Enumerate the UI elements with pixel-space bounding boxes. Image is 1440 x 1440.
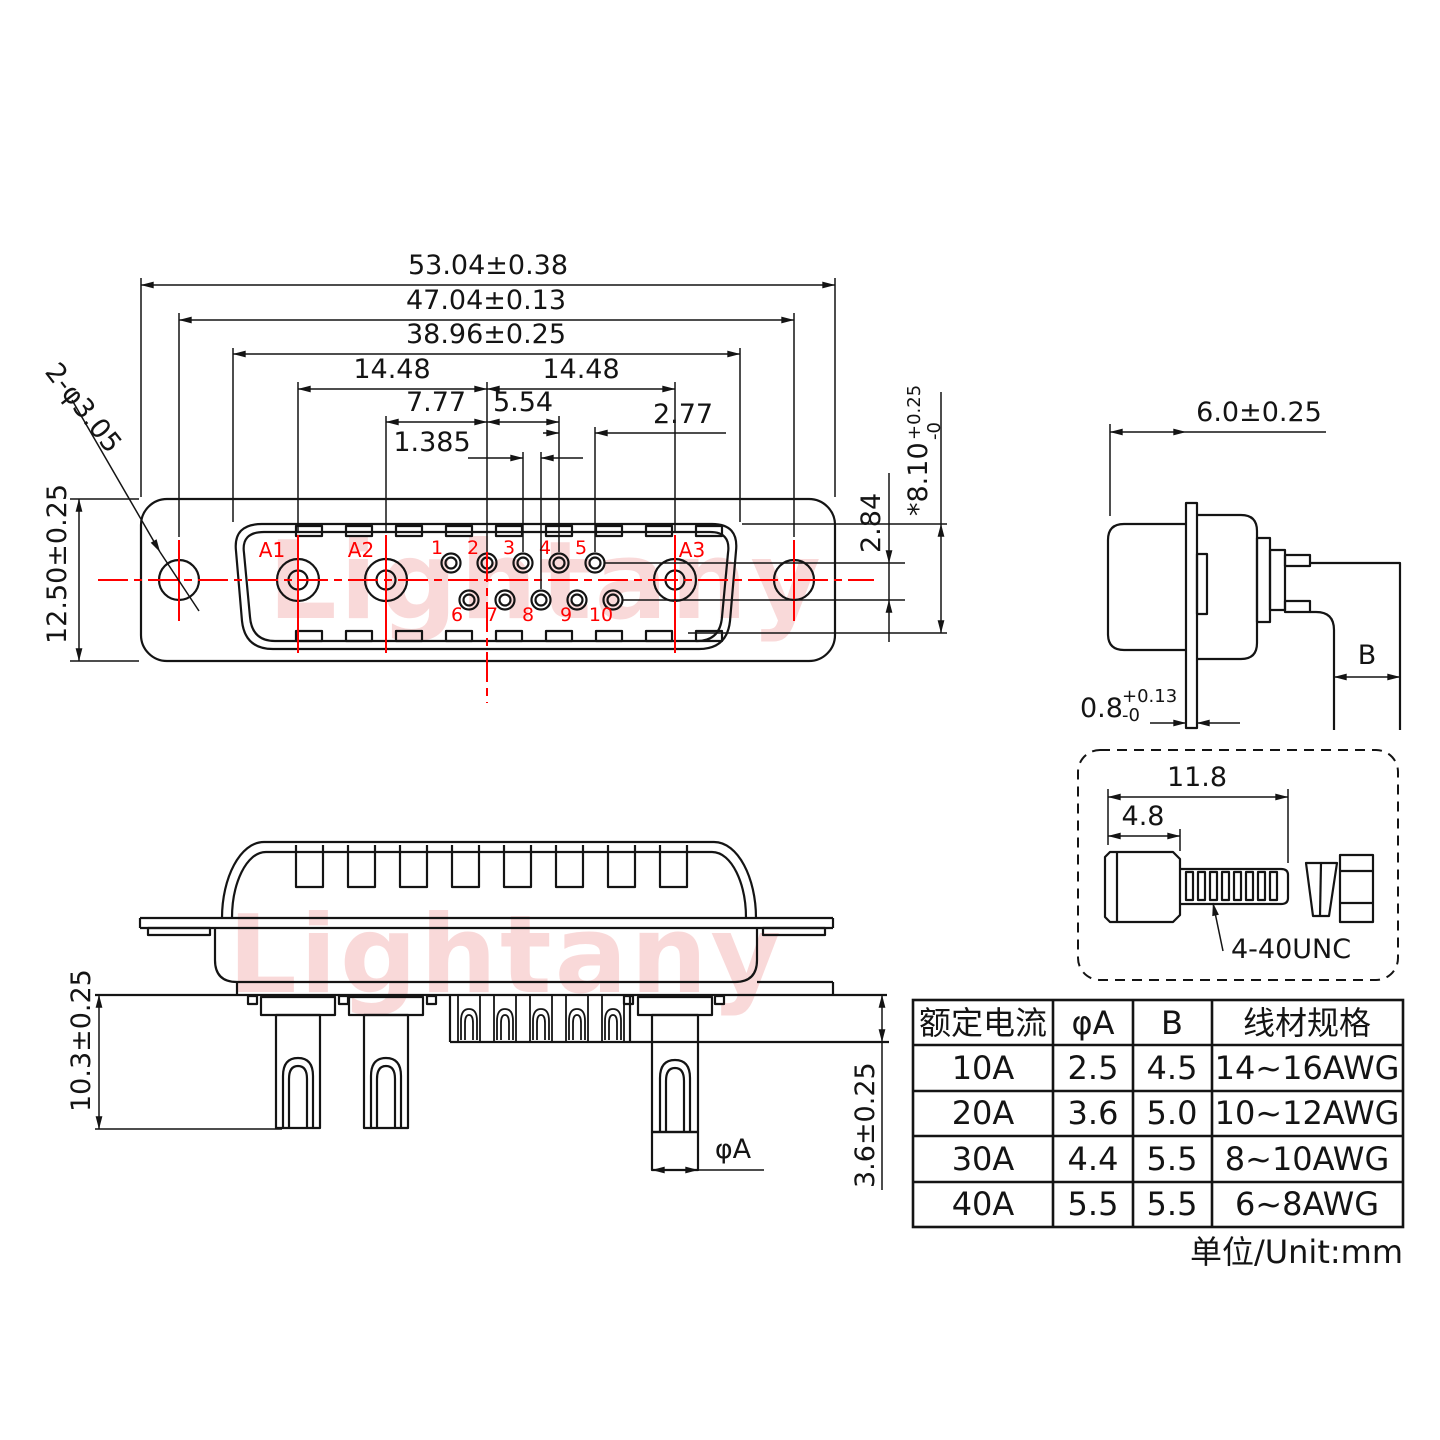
dim-shell-width: 38.96±0.25 (406, 319, 566, 350)
dim-a1-center: 14.48 (353, 354, 430, 385)
page-background (0, 0, 1440, 1440)
cell-current: 40A (952, 1185, 1015, 1223)
cell-current: 10A (952, 1049, 1015, 1087)
cell-B: 4.5 (1147, 1049, 1198, 1087)
dim-center-pin4: 5.54 (493, 387, 553, 418)
dim-wire-width: B (1358, 640, 1377, 671)
dim-row-gap: 2.84 (856, 493, 887, 553)
dim-center-a3: 14.48 (542, 354, 619, 385)
watermark-text: Lightany (228, 893, 784, 1018)
dim-pin-diameter: φA (715, 1134, 752, 1165)
pin-label-5: 5 (575, 537, 587, 559)
dim-pin-length: 10.3±0.25 (66, 969, 97, 1112)
dim-pin-pitch: 2.77 (653, 399, 713, 430)
dim-tail-length: 3.6±0.25 (850, 1062, 881, 1188)
cell-wire: 14~16AWG (1215, 1049, 1400, 1087)
dim-screw-length: 11.8 (1167, 762, 1227, 793)
dim-flange-thickness: 0.8 (1080, 693, 1123, 724)
col-header-phiA: φA (1072, 1004, 1115, 1042)
cell-phiA: 3.6 (1068, 1094, 1119, 1132)
pin-label-9: 9 (560, 604, 572, 626)
cell-B: 5.5 (1147, 1185, 1198, 1223)
dim-a2-center: 7.77 (406, 387, 466, 418)
cell-phiA: 5.5 (1068, 1185, 1119, 1223)
cell-phiA: 2.5 (1068, 1049, 1119, 1087)
dim-flange-tol-plus: +0.13 (1122, 686, 1177, 707)
col-header-wire-spec: 线材规格 (1243, 1004, 1371, 1042)
dim-shell-height-tol-plus: +0.25 (904, 385, 925, 440)
pin-label-2: 2 (467, 537, 479, 559)
cell-current: 30A (952, 1140, 1015, 1178)
col-header-B: B (1161, 1004, 1183, 1042)
dim-shell-depth: 6.0±0.25 (1196, 397, 1322, 428)
pin-label-1: 1 (431, 537, 443, 559)
dim-screw-head: 4.8 (1122, 801, 1165, 832)
pin-label-3: 3 (503, 537, 515, 559)
dim-flange-height: 12.50±0.25 (42, 484, 73, 644)
cell-current: 20A (952, 1094, 1015, 1132)
dim-total-width: 53.04±0.38 (408, 250, 568, 281)
pin-label-7: 7 (486, 604, 498, 626)
dim-hole-span: 47.04±0.13 (406, 285, 566, 316)
col-header-current: 额定电流 (919, 1004, 1047, 1042)
dim-shell-height-tol-minus: -0 (924, 422, 945, 440)
unit-note: 单位/Unit:mm (1190, 1233, 1403, 1271)
dim-flange-tol-minus: -0 (1122, 705, 1140, 726)
dim-half-pitch: 1.385 (393, 427, 470, 458)
pin-label-a1: A1 (259, 538, 285, 562)
pin-label-6: 6 (451, 604, 463, 626)
cell-wire: 6~8AWG (1235, 1185, 1379, 1223)
pin-label-a2: A2 (348, 538, 374, 562)
cell-phiA: 4.4 (1068, 1140, 1119, 1178)
cell-wire: 8~10AWG (1225, 1140, 1389, 1178)
technical-drawing-canvas: Lightany Lightany (0, 0, 1440, 1440)
cell-wire: 10~12AWG (1215, 1094, 1400, 1132)
pin-label-10: 10 (589, 604, 613, 626)
dim-shell-height: *8.10 (903, 442, 934, 516)
pin-label-8: 8 (522, 604, 534, 626)
cell-B: 5.5 (1147, 1140, 1198, 1178)
thread-spec-label: 4-40UNC (1231, 934, 1351, 965)
pin-label-a3: A3 (679, 538, 705, 562)
cell-B: 5.0 (1147, 1094, 1198, 1132)
